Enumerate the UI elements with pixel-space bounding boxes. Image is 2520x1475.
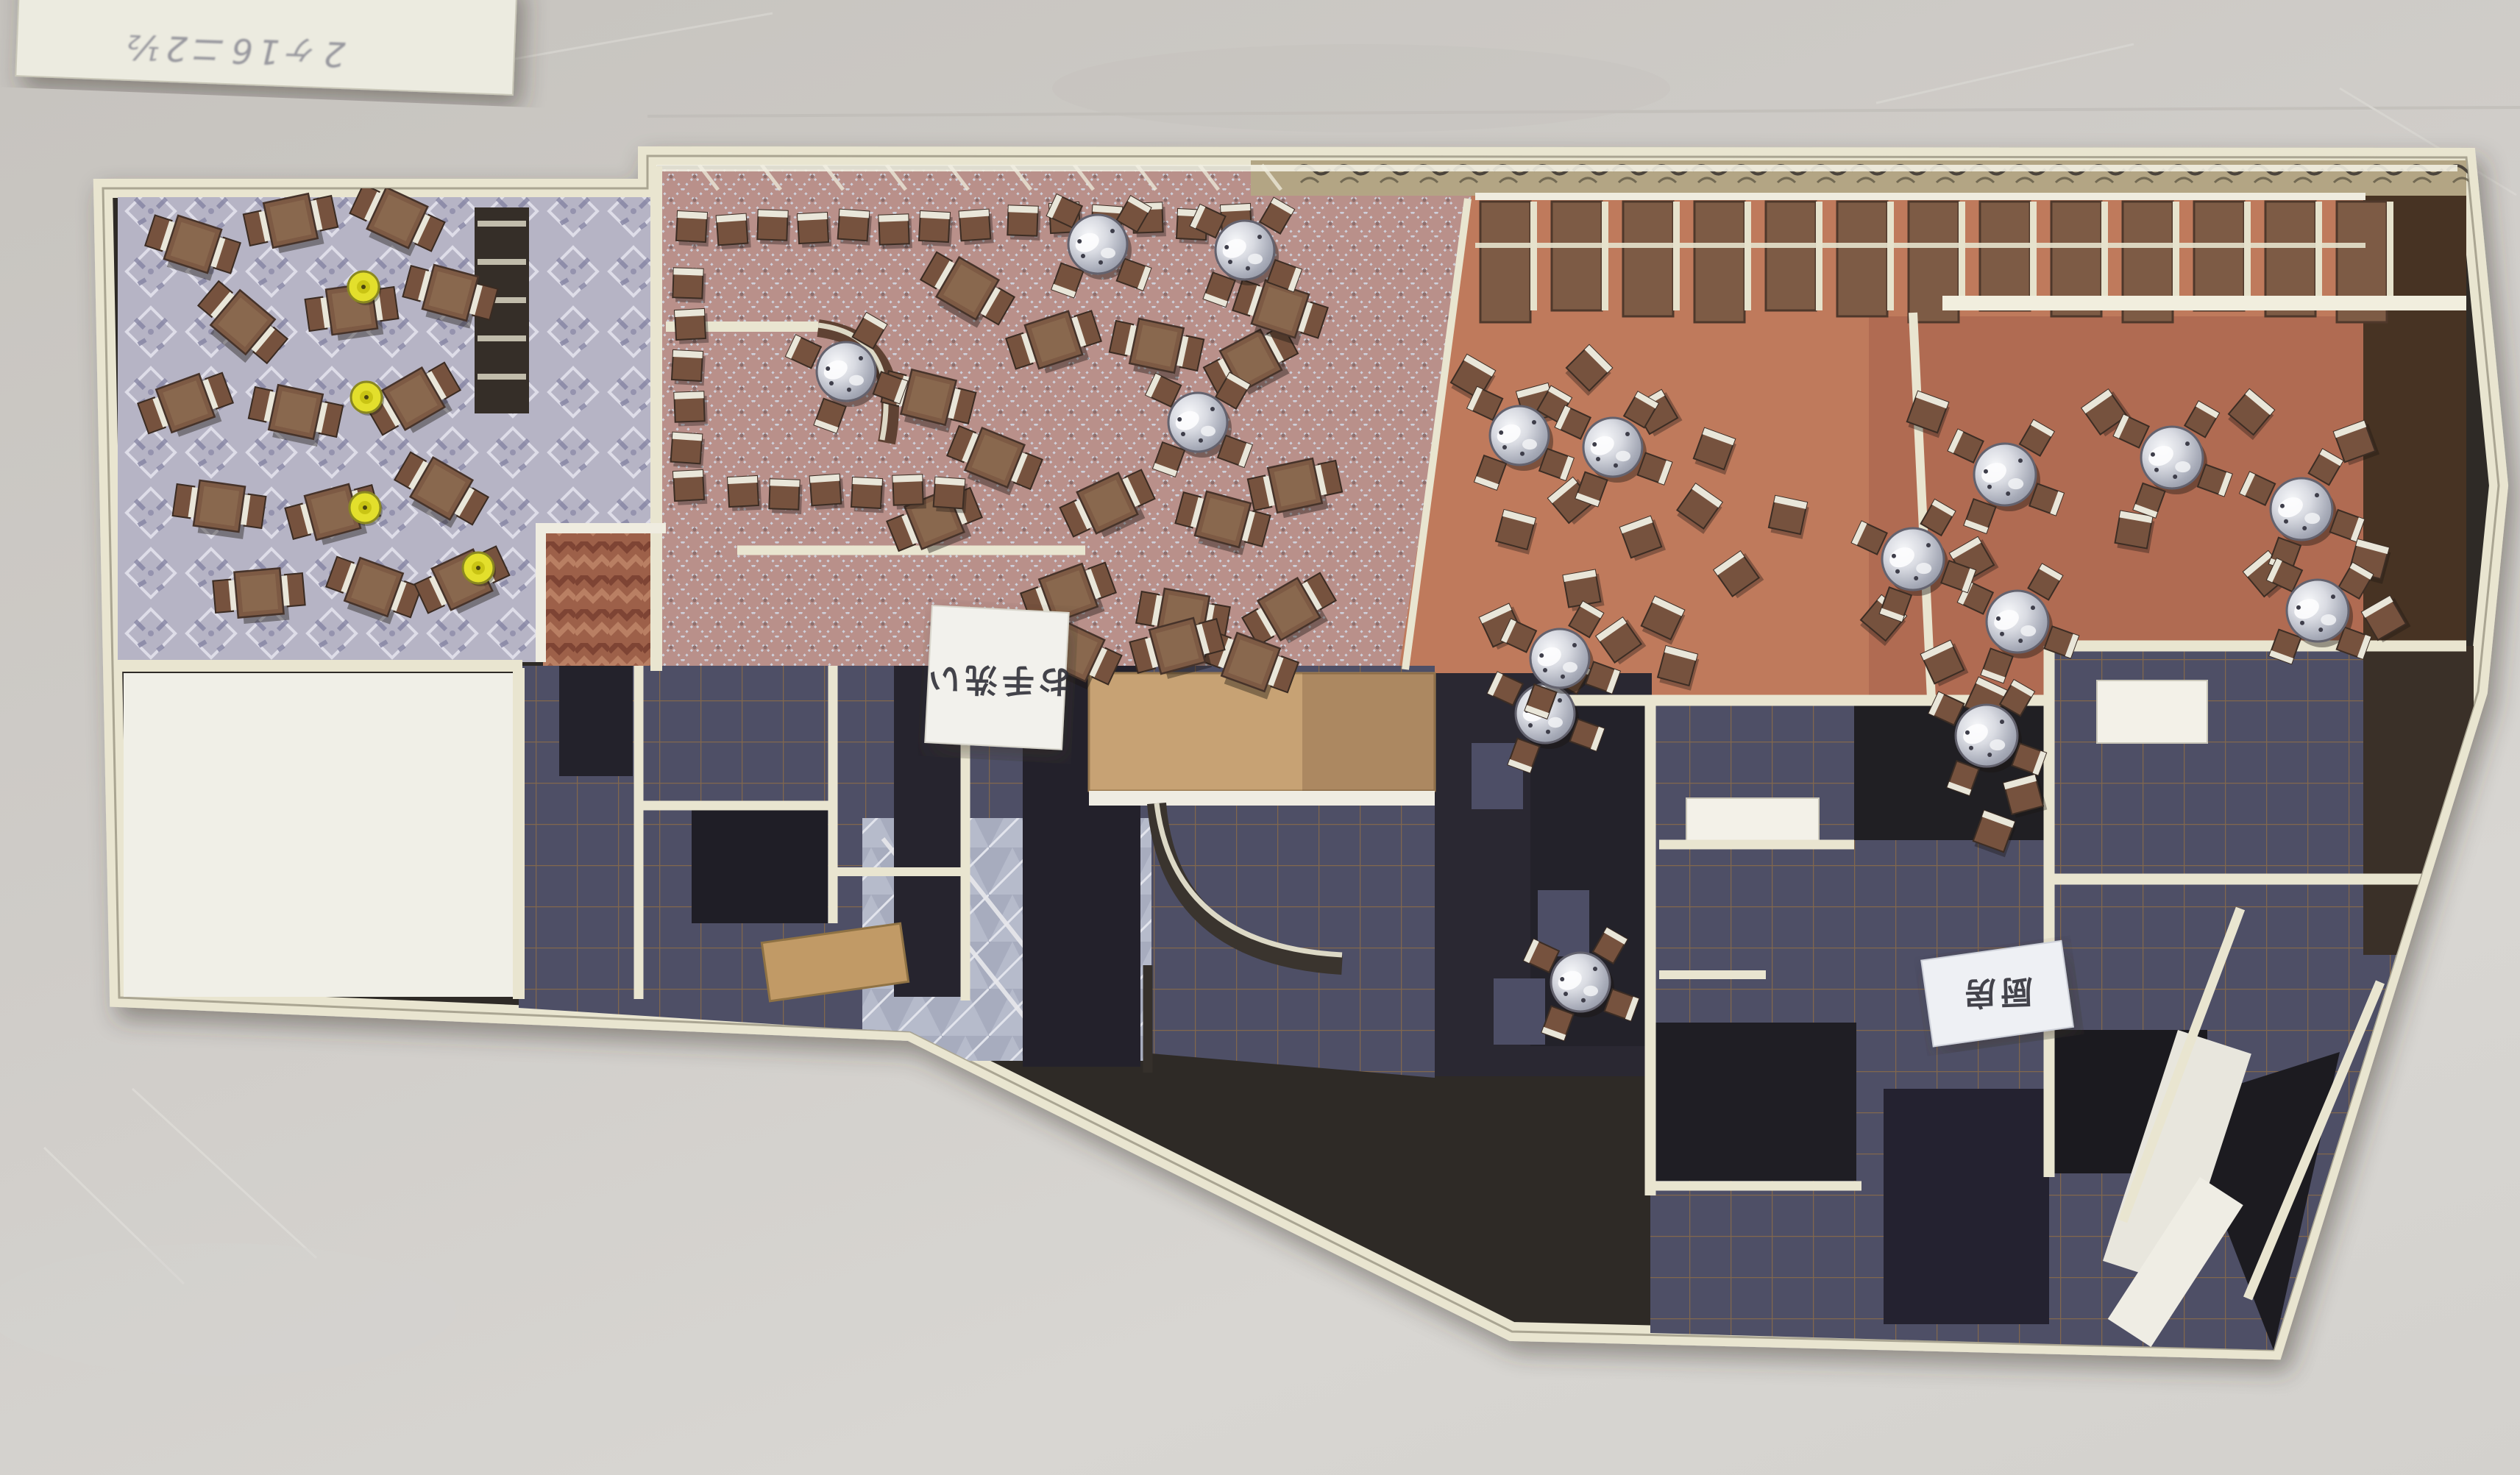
floor-back-white-room: [124, 673, 514, 997]
booth-bench: [2194, 202, 2244, 310]
booth-divider: [2244, 202, 2251, 310]
white-counter-block: [2097, 680, 2207, 743]
chair: [769, 479, 803, 514]
chair: [672, 268, 706, 303]
booth-divider: [1602, 202, 1608, 310]
chair: [810, 474, 845, 510]
chair: [717, 213, 751, 249]
chair: [1007, 205, 1041, 241]
booth-bench: [1980, 202, 2030, 310]
model-scene: 2ヶ16ニ2½: [0, 0, 2520, 1475]
chair: [879, 214, 912, 249]
booth-counter-top: [1475, 193, 2365, 200]
booth-divider: [1816, 202, 1822, 310]
chair: [851, 477, 885, 513]
booth-divider: [2173, 202, 2179, 310]
booth-divider: [2030, 202, 2037, 310]
shelf-slat: [478, 374, 526, 380]
white-counter-block: [1686, 798, 1819, 842]
chair: [798, 213, 831, 248]
counter-front-edge: [1089, 791, 1435, 806]
booth-bench: [1552, 202, 1602, 310]
chair: [757, 210, 791, 245]
chair: [672, 350, 706, 385]
chair: [959, 209, 994, 245]
booth-rail: [1475, 243, 2365, 248]
booth-bench: [1766, 202, 1816, 310]
chair: [892, 475, 926, 510]
chair: [919, 211, 953, 246]
booth-bench: [1623, 202, 1673, 316]
chair: [676, 211, 710, 246]
kraft-counter-shade: [1302, 673, 1435, 791]
kitchen-label-text: 厨房: [1959, 972, 2034, 1012]
restroom-label-text: お手洗い: [924, 659, 1072, 699]
shelf-slat: [478, 259, 526, 265]
chair: [673, 470, 707, 505]
chair: [670, 433, 705, 469]
chair: [837, 210, 872, 246]
dark-fixture: [559, 666, 633, 776]
booth-divider: [2315, 202, 2322, 310]
shelf-slat: [478, 335, 526, 341]
chair: [728, 476, 762, 511]
note-handwriting: 2ヶ16ニ2½: [122, 26, 346, 74]
corridor-opening: [1494, 978, 1545, 1045]
booth-divider: [1530, 202, 1537, 310]
booth-divider: [1673, 202, 1680, 310]
floor-herringbone-nook: [543, 530, 662, 672]
booth-divider: [2101, 202, 2108, 310]
chair: [674, 391, 708, 427]
dark-fixture: [692, 809, 828, 923]
chair: [675, 309, 709, 344]
dark-fixture: [1884, 1089, 2049, 1324]
booth-bench: [1480, 202, 1530, 322]
booth-divider: [1745, 202, 1751, 310]
booth-divider: [1887, 202, 1894, 310]
chair: [933, 477, 968, 513]
booth-bench: [1837, 202, 1887, 316]
model-body: [103, 156, 2499, 1350]
booth-divider: [2387, 202, 2393, 310]
booth-bench: [1694, 202, 1745, 322]
shelf-slat: [478, 221, 526, 227]
chair: [1768, 496, 1810, 539]
top-wall-highlight: [656, 165, 2457, 171]
photo-of-architectural-model: 2ヶ16ニ2½: [0, 0, 2520, 1475]
booth-divider: [1959, 202, 1965, 310]
chair: [2114, 511, 2155, 554]
dark-fixture: [1650, 1023, 1856, 1181]
